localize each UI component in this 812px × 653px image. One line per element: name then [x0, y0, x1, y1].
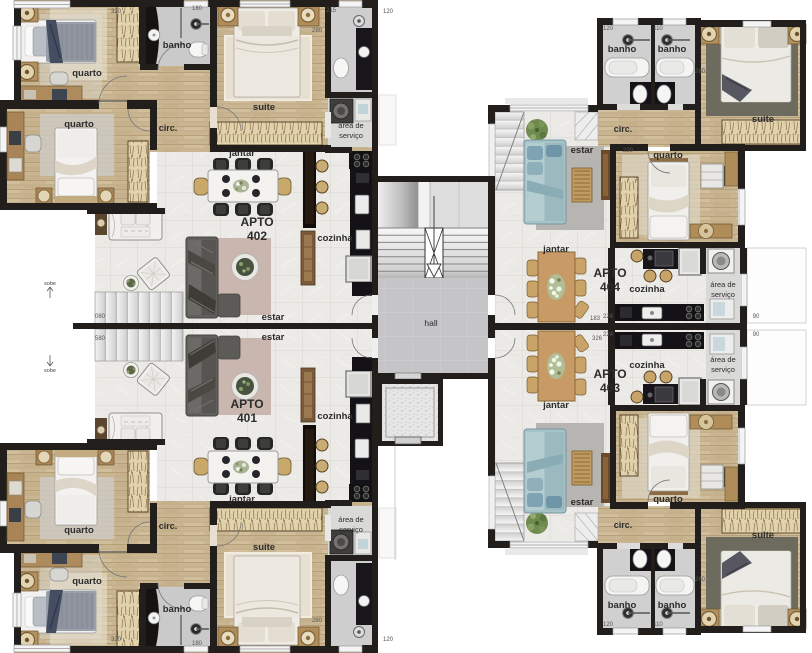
svg-text:quarto: quarto	[653, 494, 683, 505]
svg-text:hall: hall	[424, 318, 437, 328]
svg-text:326: 326	[592, 336, 603, 342]
svg-text:183: 183	[590, 316, 601, 322]
svg-text:quarto: quarto	[72, 68, 102, 79]
svg-text:serviço: serviço	[711, 290, 735, 299]
svg-text:401: 401	[237, 411, 257, 425]
svg-text:224: 224	[603, 314, 614, 320]
svg-text:banho: banho	[608, 44, 637, 55]
svg-text:serviço: serviço	[339, 525, 363, 534]
svg-text:APTO: APTO	[593, 367, 626, 381]
svg-text:quarto: quarto	[72, 576, 102, 587]
svg-text:APTO: APTO	[240, 215, 273, 229]
svg-text:120: 120	[603, 622, 614, 628]
svg-text:banho: banho	[608, 600, 637, 611]
svg-text:90: 90	[753, 332, 760, 338]
svg-text:suite: suite	[752, 530, 774, 541]
svg-text:banho: banho	[658, 600, 687, 611]
svg-text:180: 180	[192, 641, 203, 647]
svg-text:cozinha: cozinha	[629, 360, 665, 371]
svg-text:320: 320	[111, 9, 122, 15]
svg-text:área de: área de	[710, 280, 735, 289]
svg-text:circ.: circ.	[159, 123, 178, 133]
svg-text:280: 280	[312, 618, 323, 624]
svg-text:jantar: jantar	[228, 494, 255, 505]
svg-text:estar: estar	[262, 312, 285, 323]
svg-text:circ.: circ.	[614, 124, 633, 134]
svg-text:área de: área de	[338, 515, 363, 524]
svg-text:080: 080	[95, 314, 106, 320]
svg-text:banho: banho	[163, 604, 192, 615]
svg-text:estar: estar	[571, 497, 594, 508]
svg-text:224: 224	[603, 332, 614, 338]
svg-text:área de: área de	[338, 121, 363, 130]
svg-text:suite: suite	[752, 114, 774, 125]
svg-text:120: 120	[603, 26, 614, 32]
svg-text:402: 402	[247, 229, 267, 243]
svg-text:banho: banho	[658, 44, 687, 55]
svg-text:suite: suite	[253, 542, 275, 553]
svg-text:110: 110	[653, 622, 663, 628]
svg-text:circ.: circ.	[614, 520, 633, 530]
svg-text:cozinha: cozinha	[317, 233, 353, 244]
svg-text:cozinha: cozinha	[317, 411, 353, 422]
svg-text:suite: suite	[253, 102, 275, 113]
svg-text:404: 404	[600, 280, 620, 294]
svg-text:260: 260	[695, 69, 706, 75]
svg-text:180: 180	[192, 6, 203, 12]
svg-text:APTO: APTO	[593, 266, 626, 280]
svg-text:90: 90	[753, 314, 760, 320]
svg-text:banho: banho	[163, 40, 192, 51]
svg-text:quarto: quarto	[653, 150, 683, 161]
svg-text:120: 120	[383, 637, 394, 643]
svg-text:circ.: circ.	[159, 521, 178, 531]
svg-text:sobe: sobe	[44, 368, 56, 374]
svg-text:110: 110	[653, 26, 663, 32]
svg-text:área de: área de	[710, 355, 735, 364]
svg-text:quarto: quarto	[64, 119, 94, 130]
svg-text:220: 220	[623, 148, 634, 154]
svg-text:580: 580	[95, 336, 106, 342]
svg-text:sobe: sobe	[44, 281, 56, 287]
svg-text:APTO: APTO	[230, 397, 263, 411]
svg-text:jantar: jantar	[542, 244, 569, 255]
svg-text:serviço: serviço	[339, 131, 363, 140]
svg-text:jantar: jantar	[228, 148, 255, 159]
svg-text:jantar: jantar	[542, 400, 569, 411]
svg-text:403: 403	[600, 381, 620, 395]
svg-text:215: 215	[326, 8, 337, 14]
svg-text:320: 320	[111, 637, 122, 643]
svg-text:quarto: quarto	[64, 525, 94, 536]
svg-text:260: 260	[695, 577, 706, 583]
svg-text:estar: estar	[571, 145, 594, 156]
svg-text:estar: estar	[262, 332, 285, 343]
svg-text:120: 120	[383, 9, 394, 15]
svg-text:serviço: serviço	[711, 365, 735, 374]
svg-text:280: 280	[312, 28, 323, 34]
svg-text:cozinha: cozinha	[629, 284, 665, 295]
